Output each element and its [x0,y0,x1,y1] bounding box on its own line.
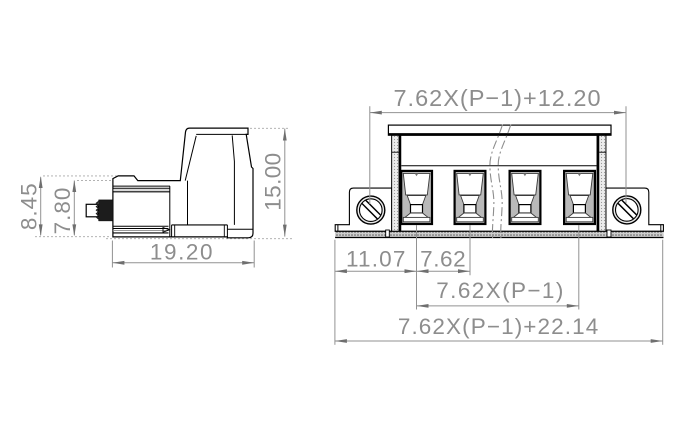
svg-text:7.62X(P−1)+12.20: 7.62X(P−1)+12.20 [393,85,601,111]
svg-text:15.00: 15.00 [261,152,286,210]
svg-text:8.45: 8.45 [17,182,42,230]
svg-text:11.07: 11.07 [346,247,407,272]
svg-text:7.62: 7.62 [420,247,466,272]
svg-text:19.20: 19.20 [150,240,214,265]
svg-text:7.80: 7.80 [50,187,75,235]
svg-text:7.62X(P−1): 7.62X(P−1) [436,278,564,303]
svg-text:7.62X(P−1)+22.14: 7.62X(P−1)+22.14 [398,314,600,339]
